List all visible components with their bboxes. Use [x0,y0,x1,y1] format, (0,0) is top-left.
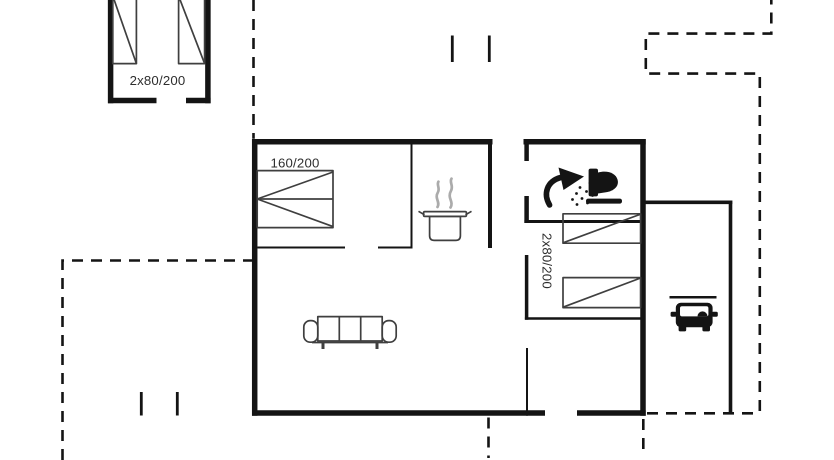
car-wheel-right [702,326,710,332]
car-wheel-left [679,326,687,332]
carport [645,201,732,415]
annex-bed-size-label: 2x80/200 [130,73,186,88]
toilet-bowl [598,172,618,194]
bed-diagonal [257,199,333,227]
main-bed-size-label: 160/200 [270,156,319,171]
terrace-outlines [63,0,772,460]
bed-diagonal [113,0,137,64]
bed-diagonal [179,0,205,64]
boundary-ticks [141,36,489,416]
steam-line [450,179,452,208]
toilet-icon [586,169,622,204]
bed-symbol [563,278,641,308]
floor-plan-page: 2x80/200 160/200 [0,0,834,460]
pot-body [430,216,461,240]
shower-arm [546,178,560,206]
bathroom [524,145,645,224]
bed-diagonal [563,214,641,243]
bedroom-main: 160/200 [257,145,412,248]
car-mirror-right [712,312,718,317]
toilet-tank [589,169,598,197]
double-bed-symbol [257,171,333,228]
bed-symbol [563,214,641,243]
bed-symbol [113,0,137,64]
annex-room: 2x80/200 [108,0,211,103]
right-bed-size-label: 2x80/200 [540,233,555,289]
bedroom-right: 2x80/200 [525,214,643,416]
terrace-dashed-northeast [646,0,772,411]
kitchen [419,145,491,249]
sofa-seat [318,317,382,341]
toilet-base [586,199,622,204]
bed-diagonal [563,278,641,307]
sofa-symbol [304,317,396,349]
sofa-armrest-left [304,321,318,343]
cooking-pot-icon [419,179,472,241]
terrace-dashed-southwest [63,261,253,460]
floor-plan-drawing: 2x80/200 160/200 [0,0,834,460]
car-icon [670,297,718,331]
car-mirror-left [671,312,677,317]
bed-symbol [179,0,205,64]
bed-diagonal [257,172,333,199]
sofa-leg [322,343,325,349]
steam-line [437,182,439,207]
sofa-armrest-right [382,321,396,343]
sofa-leg [376,343,379,349]
